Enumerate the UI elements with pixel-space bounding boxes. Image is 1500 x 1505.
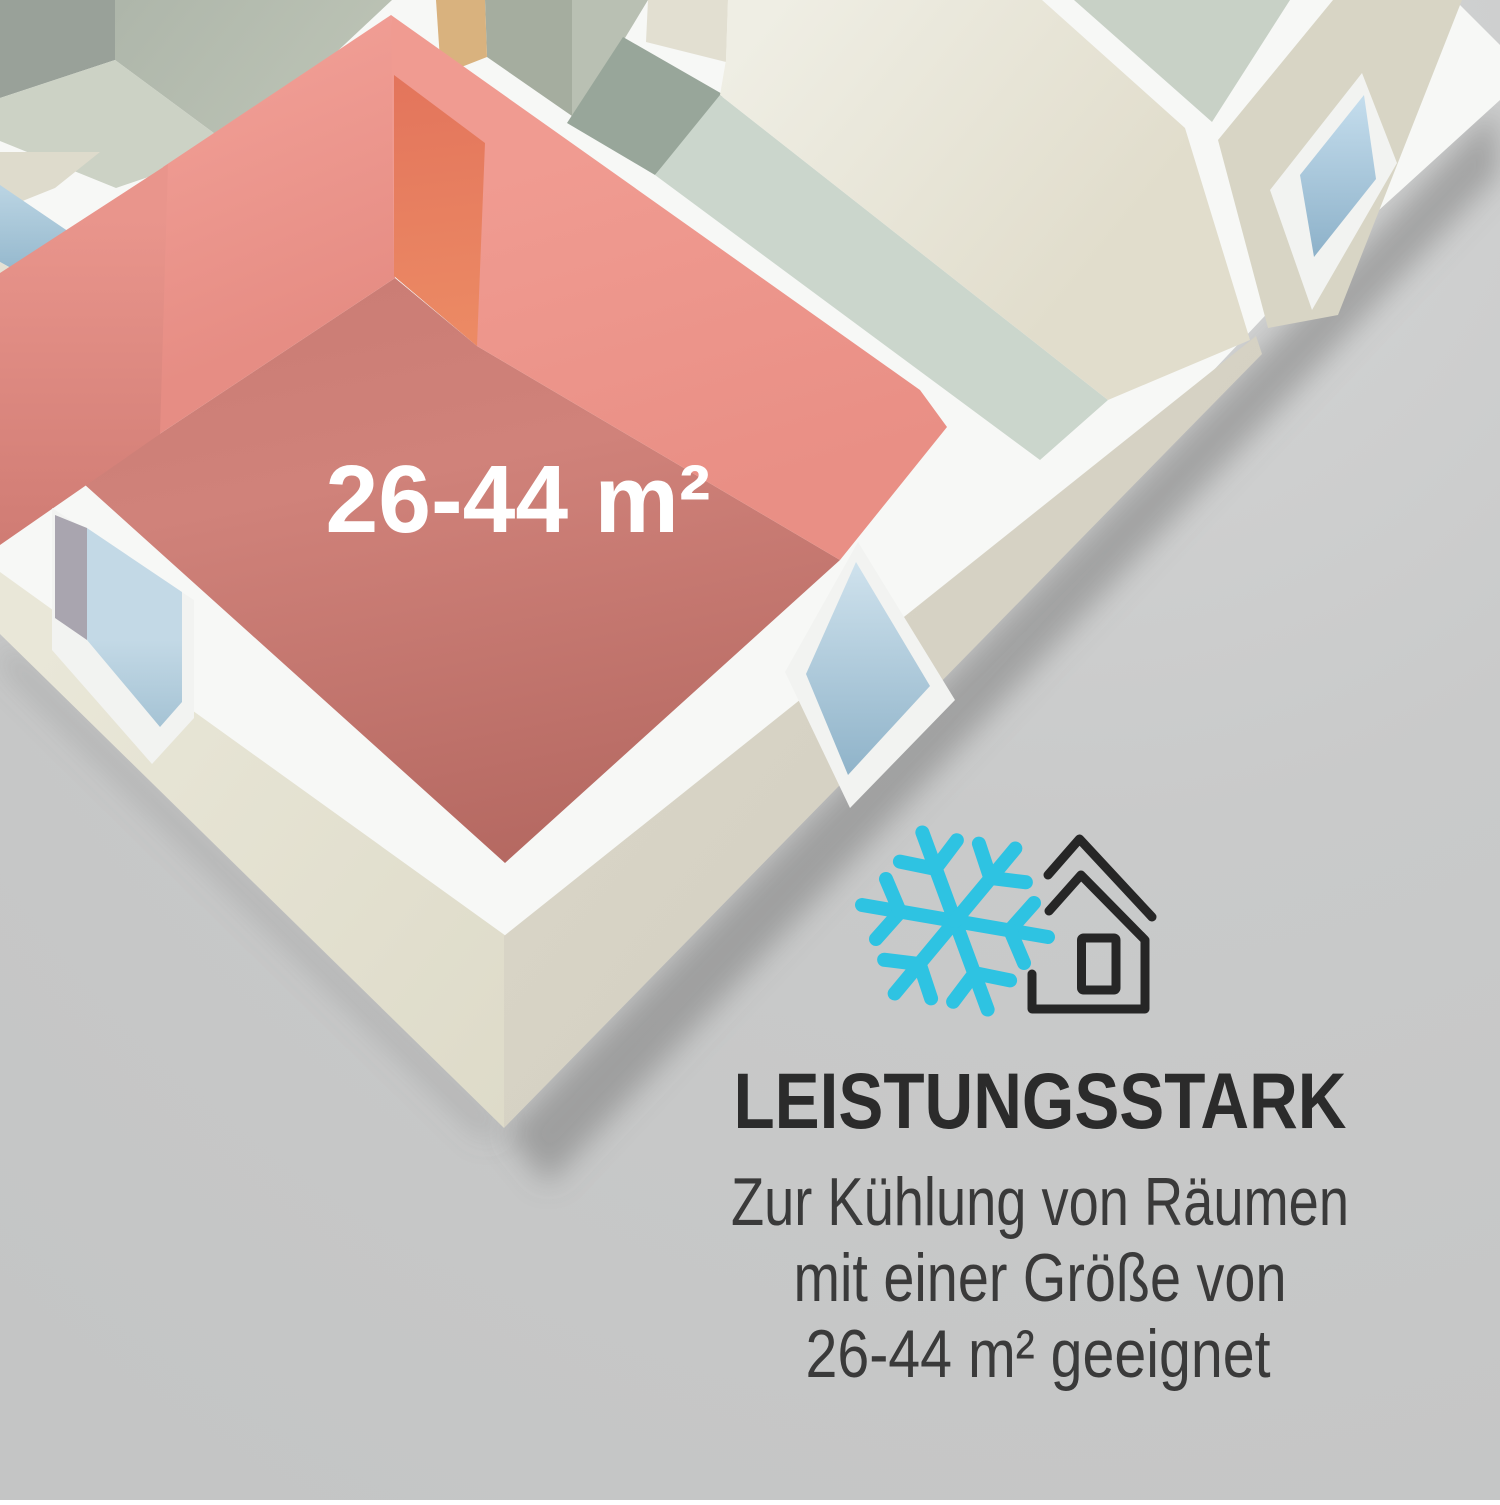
svg-text:26-44 m² geeignet: 26-44 m² geeignet <box>806 1316 1271 1392</box>
svg-text:LEISTUNGSSTARK: LEISTUNGSSTARK <box>734 1056 1347 1145</box>
svg-text:Zur Kühlung von Räumen: Zur Kühlung von Räumen <box>731 1164 1349 1240</box>
svg-text:mit einer Größe von: mit einer Größe von <box>794 1240 1287 1316</box>
svg-text:26-44 m²: 26-44 m² <box>326 446 711 553</box>
